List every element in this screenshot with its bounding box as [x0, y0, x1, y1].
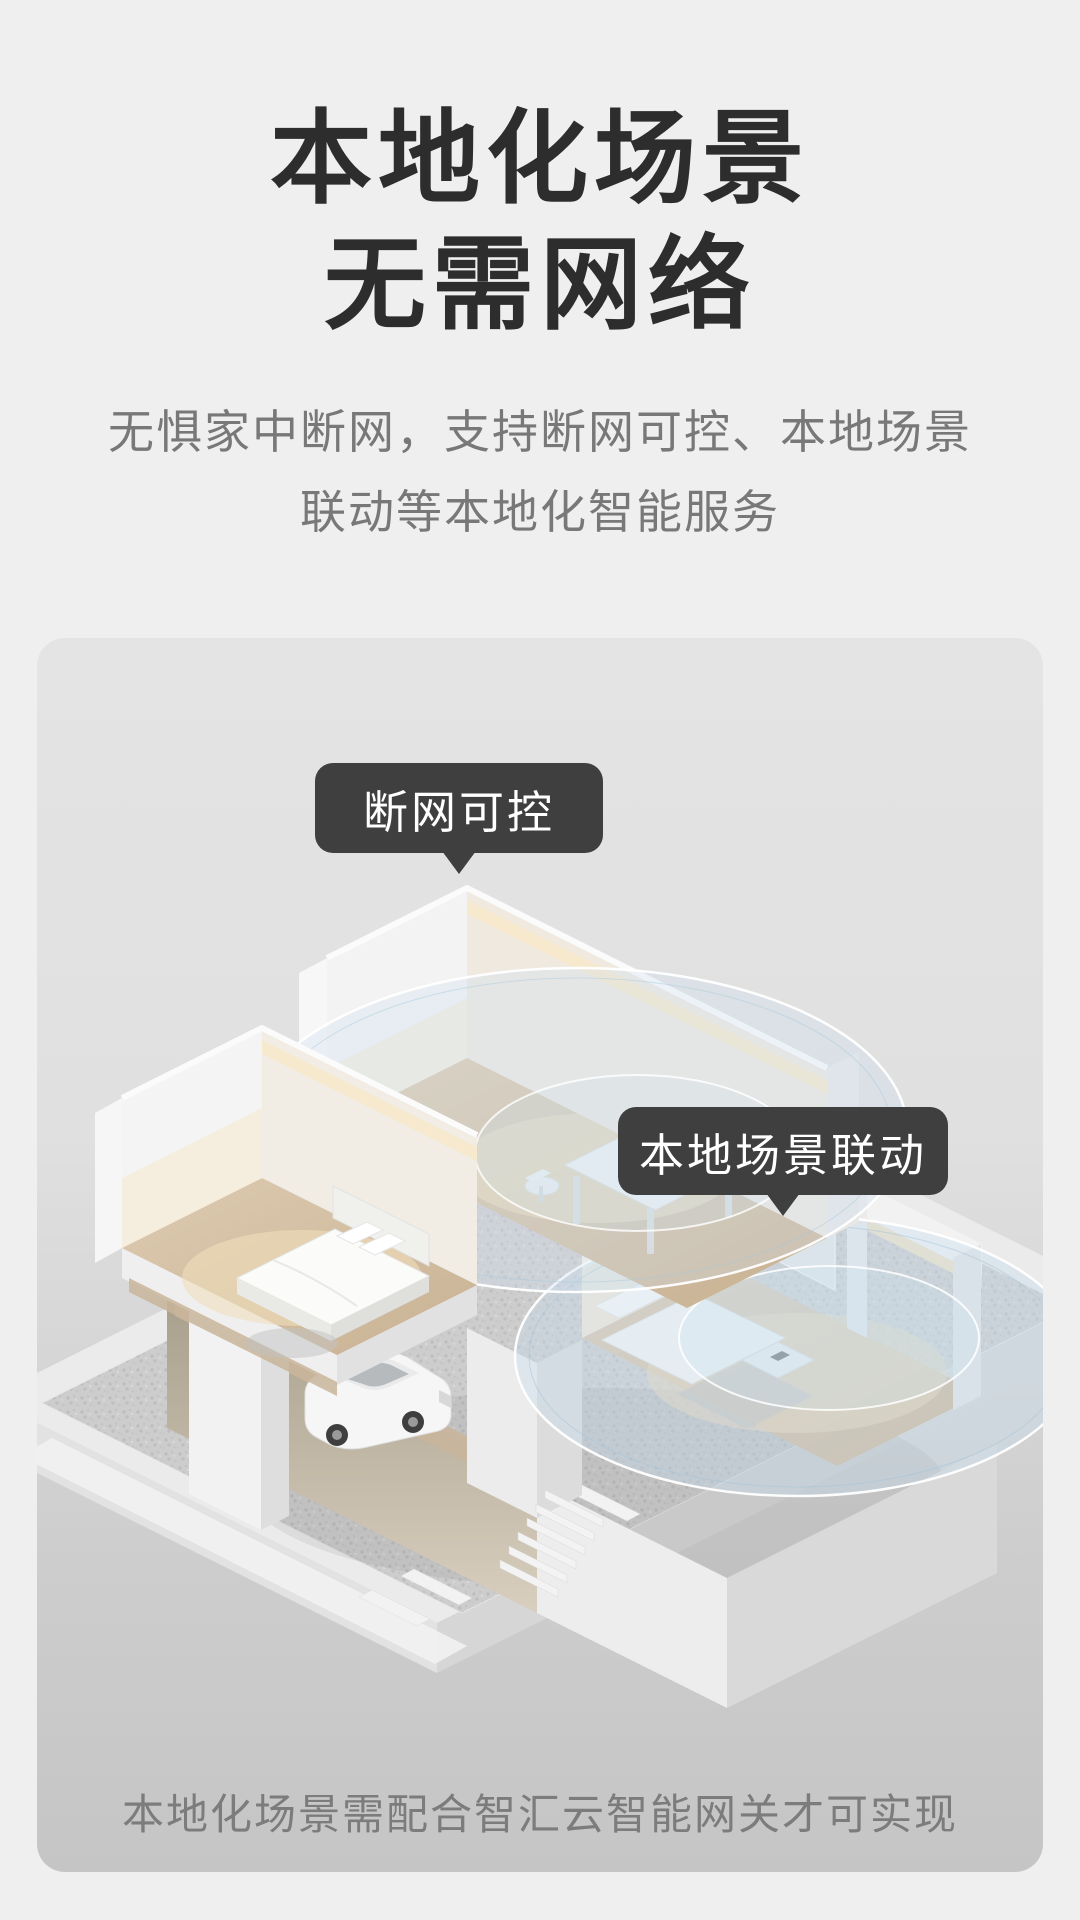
- page: { "header": { "title_lines": ["本地化场景", "…: [0, 0, 1080, 1920]
- callout-local-scene-linkage-label: 本地场景联动: [639, 1119, 927, 1184]
- illustration-panel: 断网可控 本地场景联动 本地化场景需配合智汇云智能网关才可实现: [37, 638, 1043, 1872]
- page-subtitle-line1: 无惧家中断网，支持断网可控、本地场景: [0, 392, 1080, 472]
- page-title: 本地化场景 无需网络: [0, 96, 1080, 348]
- page-subtitle: 无惧家中断网，支持断网可控、本地场景 联动等本地化智能服务: [0, 392, 1080, 552]
- page-title-line1: 本地化场景: [0, 96, 1080, 222]
- callout-offline-control-label: 断网可控: [363, 776, 555, 841]
- callout-local-scene-linkage: 本地场景联动: [618, 1107, 948, 1195]
- page-subtitle-line2: 联动等本地化智能服务: [0, 472, 1080, 552]
- callout-pointer-down-icon: [766, 1193, 800, 1216]
- bedroom-rug: [246, 1328, 338, 1358]
- callout-offline-control: 断网可控: [315, 763, 603, 853]
- callout-pointer-down-icon: [442, 851, 476, 874]
- page-title-line2: 无需网络: [0, 222, 1080, 348]
- panel-caption: 本地化场景需配合智汇云智能网关才可实现: [37, 1781, 1043, 1842]
